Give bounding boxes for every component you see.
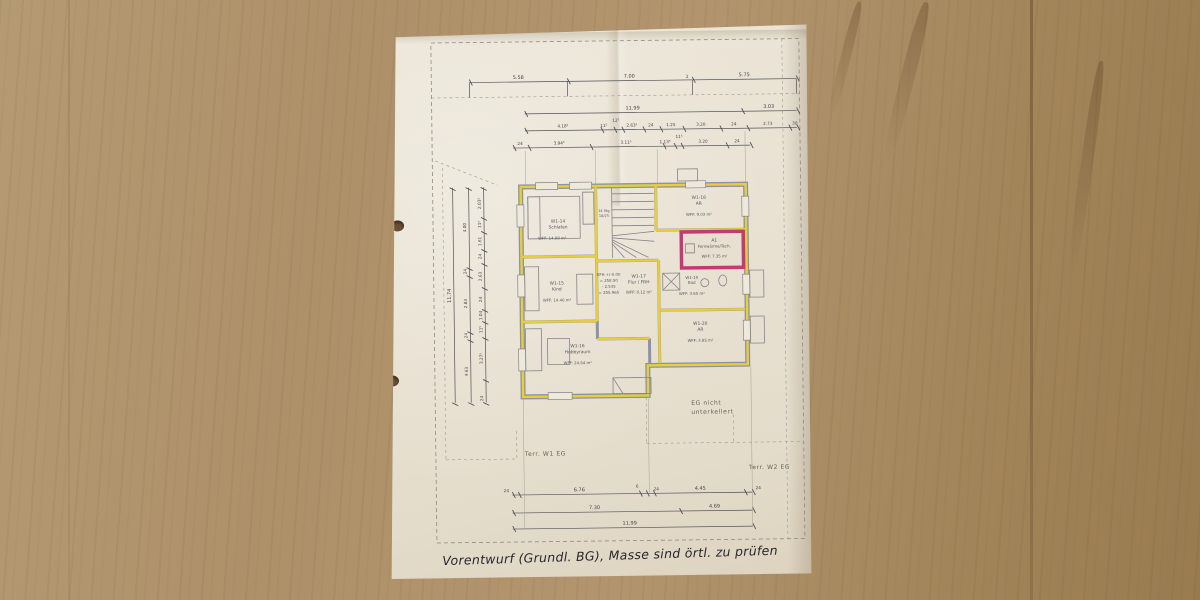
dim-label: 3.11⁵ bbox=[621, 140, 632, 145]
dim-label: 2 bbox=[686, 74, 689, 79]
dim-label: 2.63 bbox=[478, 271, 483, 281]
dim-label: 2.63⁵ bbox=[626, 123, 637, 128]
svg-text:= 258.50: = 258.50 bbox=[600, 278, 619, 283]
svg-text:W1-14: W1-14 bbox=[551, 218, 566, 224]
svg-text:W1-17: W1-17 bbox=[632, 273, 647, 279]
dim-label: 5.75 bbox=[739, 72, 750, 78]
svg-text:WFF: 8.12 m²: WFF: 8.12 m² bbox=[626, 289, 652, 294]
dim-label: 2.03⁵ bbox=[477, 198, 482, 209]
svg-text:Fernwärme/Tech.: Fernwärme/Tech. bbox=[698, 243, 731, 248]
svg-text:W1-15: W1-15 bbox=[550, 280, 565, 286]
dim-label: 7.30 bbox=[589, 505, 600, 511]
svg-text:Schlafen: Schlafen bbox=[549, 224, 568, 230]
room-label-ar-nord: W1-18 AR WFF: 9.03 m² bbox=[686, 195, 713, 217]
room-label-ar-sued: W1-20 AR WFF: 3.85 m² bbox=[687, 321, 714, 343]
dim-label: 7.00 bbox=[624, 74, 635, 80]
dim-label: 24 bbox=[731, 121, 737, 126]
dim-label: 2.83 bbox=[463, 299, 468, 309]
dim-label: 1.25 bbox=[666, 122, 676, 127]
svg-text:Bad: Bad bbox=[688, 280, 696, 285]
dim-label: 3.20 bbox=[698, 139, 708, 144]
dimension-chain-top: 5.58 7.00 2 5.75 11.99 3.03 4.18⁵ 11⁵ 12… bbox=[469, 72, 800, 152]
dim-label: 30 bbox=[792, 121, 798, 126]
svg-text:EFH +/-0.00: EFH +/-0.00 bbox=[597, 272, 621, 277]
svg-text:WFF: 14.46 m²: WFF: 14.46 m² bbox=[543, 297, 572, 302]
room-label-hobbyraum: W1-16 Hobbyraum WFF: 24.64 m² bbox=[563, 343, 592, 365]
svg-text:WFF: 7.35 m²: WFF: 7.35 m² bbox=[702, 253, 728, 258]
dim-label: 4.18⁵ bbox=[557, 123, 568, 128]
dim-label: 11.74 bbox=[447, 289, 453, 303]
svg-text:EG nicht: EG nicht bbox=[691, 400, 721, 407]
dim-label: 11⁵ bbox=[600, 123, 607, 128]
dim-label: 24 bbox=[648, 122, 654, 127]
dim-label: 24 bbox=[477, 253, 482, 259]
dim-label: 1.13⁵ bbox=[660, 139, 671, 144]
svg-text:= 255.965: = 255.965 bbox=[599, 290, 620, 295]
technik-room-outline bbox=[681, 231, 743, 268]
dim-label: 24 bbox=[517, 141, 523, 146]
svg-text:Kind: Kind bbox=[552, 286, 562, 292]
dimension-chain-bottom: 24 6.76 6 24 4.45 24 7.30 4.69 11.99 bbox=[504, 482, 762, 532]
svg-text:W1-16: W1-16 bbox=[570, 343, 585, 349]
eg-nicht-unterkellert-note: EG nicht unterkellert bbox=[691, 399, 733, 416]
elevation-note: EFH +/-0.00 = 258.50 - 2.535 = 255.965 bbox=[597, 272, 621, 295]
svg-text:Hobbyraum: Hobbyraum bbox=[565, 349, 591, 355]
dim-label: 24 bbox=[463, 269, 468, 275]
svg-text:14 Stg: 14 Stg bbox=[598, 209, 609, 213]
dim-label: 24 bbox=[478, 296, 483, 302]
svg-text:AR: AR bbox=[697, 327, 703, 333]
room-label-flur: W1-17 Flur / FRH WFF: 8.12 m² bbox=[626, 273, 653, 294]
staircase bbox=[612, 187, 655, 258]
svg-text:W1-18: W1-18 bbox=[692, 195, 707, 201]
terrace-w1-label: Terr. W1 EG bbox=[524, 450, 566, 458]
dim-label: 24 bbox=[479, 395, 484, 401]
dim-label: 24 bbox=[756, 485, 762, 490]
dim-label: 11.99 bbox=[625, 105, 639, 111]
svg-text:- 2.535: - 2.535 bbox=[602, 284, 616, 289]
dim-label: 1.04 bbox=[478, 310, 483, 320]
paper-sheet: 5.58 7.00 2 5.75 11.99 3.03 4.18⁵ 11⁵ 12… bbox=[384, 23, 815, 579]
svg-text:WFF: 9.03 m²: WFF: 9.03 m² bbox=[686, 212, 712, 217]
dim-label: 4.69 bbox=[709, 504, 720, 510]
wood-plank-seam-left bbox=[68, 0, 70, 600]
svg-text:WFF: 14.88 m²: WFF: 14.88 m² bbox=[538, 235, 567, 240]
dim-label: 24 bbox=[654, 486, 660, 491]
dim-label: 3.27⁵ bbox=[479, 353, 484, 364]
stair-label: 14 Stg 18/25 bbox=[598, 209, 609, 218]
dim-label: 24 bbox=[504, 488, 510, 493]
dim-label: 24 bbox=[463, 333, 468, 339]
dim-label: 4.63 bbox=[464, 367, 469, 377]
dim-label: 4.45 bbox=[695, 486, 706, 492]
dim-label: 3.03 bbox=[763, 104, 774, 110]
dim-label: 11⁵ bbox=[478, 326, 483, 333]
dim-label: 6.76 bbox=[574, 487, 585, 493]
photo-of-floor-plan: 5.58 7.00 2 5.75 11.99 3.03 4.18⁵ 11⁵ 12… bbox=[0, 0, 1200, 600]
svg-text:WFF: 3.85 m²: WFF: 3.85 m² bbox=[688, 338, 714, 343]
svg-text:unterkellert: unterkellert bbox=[691, 408, 733, 416]
svg-text:18/25: 18/25 bbox=[599, 214, 609, 218]
svg-text:WFF: 24.64 m²: WFF: 24.64 m² bbox=[564, 360, 593, 365]
dim-label: 11.99 bbox=[623, 521, 637, 527]
dim-label: 3.20 bbox=[696, 122, 706, 127]
dim-label: 12⁵ bbox=[612, 118, 619, 123]
room-label-schlafen: W1-14 Schlafen WFF: 14.88 m² bbox=[538, 218, 568, 240]
dim-label: 4.00 bbox=[462, 223, 467, 233]
room-label-kind: W1-15 Kind WFF: 14.46 m² bbox=[543, 280, 572, 302]
dim-label: 5.58 bbox=[513, 75, 524, 81]
dim-label: 24 bbox=[734, 138, 740, 143]
svg-text:AR: AR bbox=[696, 201, 702, 207]
dim-label: 2.73 bbox=[763, 121, 773, 126]
terrace-w2-label: Terr. W2 EG bbox=[748, 464, 790, 472]
extension-lines bbox=[520, 131, 753, 529]
floor-plan-drawing: 5.58 7.00 2 5.75 11.99 3.03 4.18⁵ 11⁵ 12… bbox=[384, 23, 815, 579]
wood-plank-seam-right bbox=[1030, 0, 1033, 600]
svg-text:W1-20: W1-20 bbox=[693, 321, 708, 327]
dim-label: 11⁵ bbox=[477, 221, 482, 228]
svg-text:WFF: 3.65 m²: WFF: 3.65 m² bbox=[679, 291, 705, 296]
dim-label: 11⁵ bbox=[675, 134, 682, 139]
svg-text:Flur / FRH: Flur / FRH bbox=[628, 279, 650, 285]
dim-label: 3.94⁵ bbox=[554, 140, 565, 145]
dim-label: 6 bbox=[636, 484, 639, 489]
dimension-chain-left: 11.74 4.00 24 2.83 24 4.63 2.03⁵ 11⁵ 1.6… bbox=[446, 187, 490, 405]
dim-label: 1.61 bbox=[477, 236, 482, 246]
